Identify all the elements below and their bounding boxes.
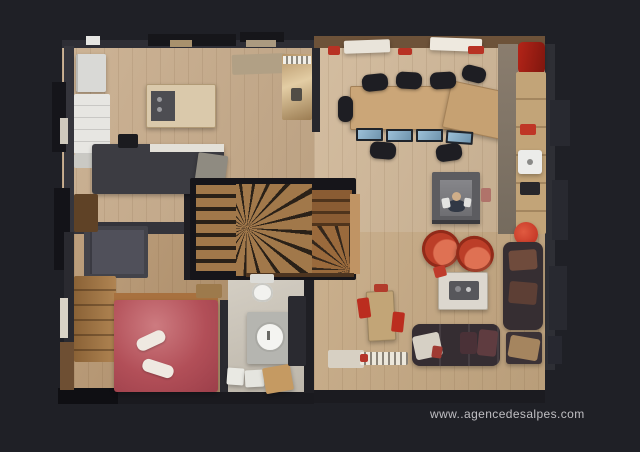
fridge [76, 54, 106, 92]
white-object-right [463, 198, 471, 208]
red-chair-top [374, 284, 388, 292]
storage-box-1 [226, 367, 244, 385]
wall-entry-right [312, 48, 320, 132]
stairs-side-stringer [350, 194, 360, 274]
radiator [283, 56, 311, 64]
wood-stool [262, 364, 294, 394]
office-right-wall-strip [498, 44, 518, 234]
window-sliver-left-kitchen [60, 118, 68, 144]
tablet [520, 182, 540, 195]
office-sill-1 [344, 39, 390, 54]
wardrobe [74, 276, 116, 362]
window-sliver-left-bedroom [60, 298, 68, 338]
dresser [74, 194, 98, 232]
sink-basin [255, 322, 285, 352]
coffee-machine [518, 150, 542, 174]
office-chair-5 [369, 141, 396, 160]
stairs-winder-fan [236, 184, 312, 276]
sofa-pillow-maroon [477, 329, 499, 357]
slat-red-accent [360, 354, 368, 362]
person-head [452, 192, 461, 201]
white-object-left [441, 197, 451, 208]
scan-ghost-right-2 [552, 180, 568, 240]
flower-vase [481, 188, 491, 202]
closet-door [90, 230, 144, 274]
monitor-3 [416, 129, 443, 142]
tray-item-1 [455, 286, 461, 292]
office-desk [350, 86, 454, 130]
fireplace-hearth [432, 220, 480, 224]
kitchen-island [146, 84, 216, 128]
monitor-screen [448, 132, 472, 143]
red-chair-left [357, 297, 372, 318]
stairs-lower-fan [312, 226, 352, 276]
floorplan-scene: www..agencedesalpes.com [0, 0, 640, 452]
monitor-4 [446, 130, 474, 145]
fireplace [432, 172, 480, 224]
toilet-bowl [252, 283, 273, 302]
sofa-right-pillow-1 [508, 249, 537, 271]
wall-bottom-living [314, 390, 545, 403]
office-chair-left [338, 96, 353, 122]
scan-ghost-right-3 [549, 266, 567, 330]
window-sliver-top-left [86, 36, 100, 45]
monitor-1 [356, 128, 383, 141]
wall-fragment-bottom-left [58, 388, 118, 404]
sofa-pillow-dark [460, 332, 477, 354]
red-chairback-2 [398, 48, 412, 55]
monitor-2 [386, 129, 413, 142]
burner-dot-1 [157, 97, 162, 102]
red-chairback-3 [468, 46, 484, 54]
wood-fragment-left-bottom [60, 342, 74, 390]
office-chair-3 [430, 71, 457, 89]
burner-dot-2 [157, 107, 162, 112]
wall-fragment-top-1 [148, 34, 236, 46]
wood-fragment-top-1 [170, 40, 192, 47]
red-chairback-1 [328, 46, 340, 55]
monitor-screen [388, 131, 411, 140]
kitchen-unit-white-top [150, 144, 224, 152]
sofa-right-pillow-2 [508, 281, 538, 305]
espresso-item [520, 124, 536, 135]
monitor-screen [358, 130, 381, 139]
bedside-table [196, 284, 222, 298]
bathroom-dark-corner [288, 296, 306, 366]
stairs-landing [312, 190, 352, 226]
entry-mirror-room [282, 54, 312, 120]
entry-dark-object [291, 88, 302, 101]
coffee-machine-dot [527, 159, 533, 165]
sofa-red-accent [431, 345, 443, 358]
entry-cabinet [232, 53, 287, 75]
stairs-straight-flight [196, 185, 236, 271]
coffee-table [438, 272, 488, 310]
closet [84, 226, 148, 278]
coffee-table-tray [449, 281, 479, 300]
office-chair-1 [361, 73, 389, 93]
tray-item-2 [466, 287, 471, 292]
living-rug [328, 350, 364, 368]
faucet [267, 331, 270, 340]
red-armchair-corner [518, 42, 545, 74]
laptop [118, 134, 138, 148]
toilet-tank [250, 274, 274, 283]
cooktop [151, 91, 175, 121]
scan-ghost-right-4 [548, 336, 562, 364]
scan-ghost-right-1 [550, 100, 570, 146]
wood-fragment-top-2 [246, 40, 276, 47]
red-chair-right [391, 311, 405, 332]
office-chair-2 [396, 71, 423, 89]
watermark-url: www..agencedesalpes.com [430, 407, 585, 421]
storage-box-2 [245, 370, 265, 388]
monitor-screen [418, 131, 441, 140]
